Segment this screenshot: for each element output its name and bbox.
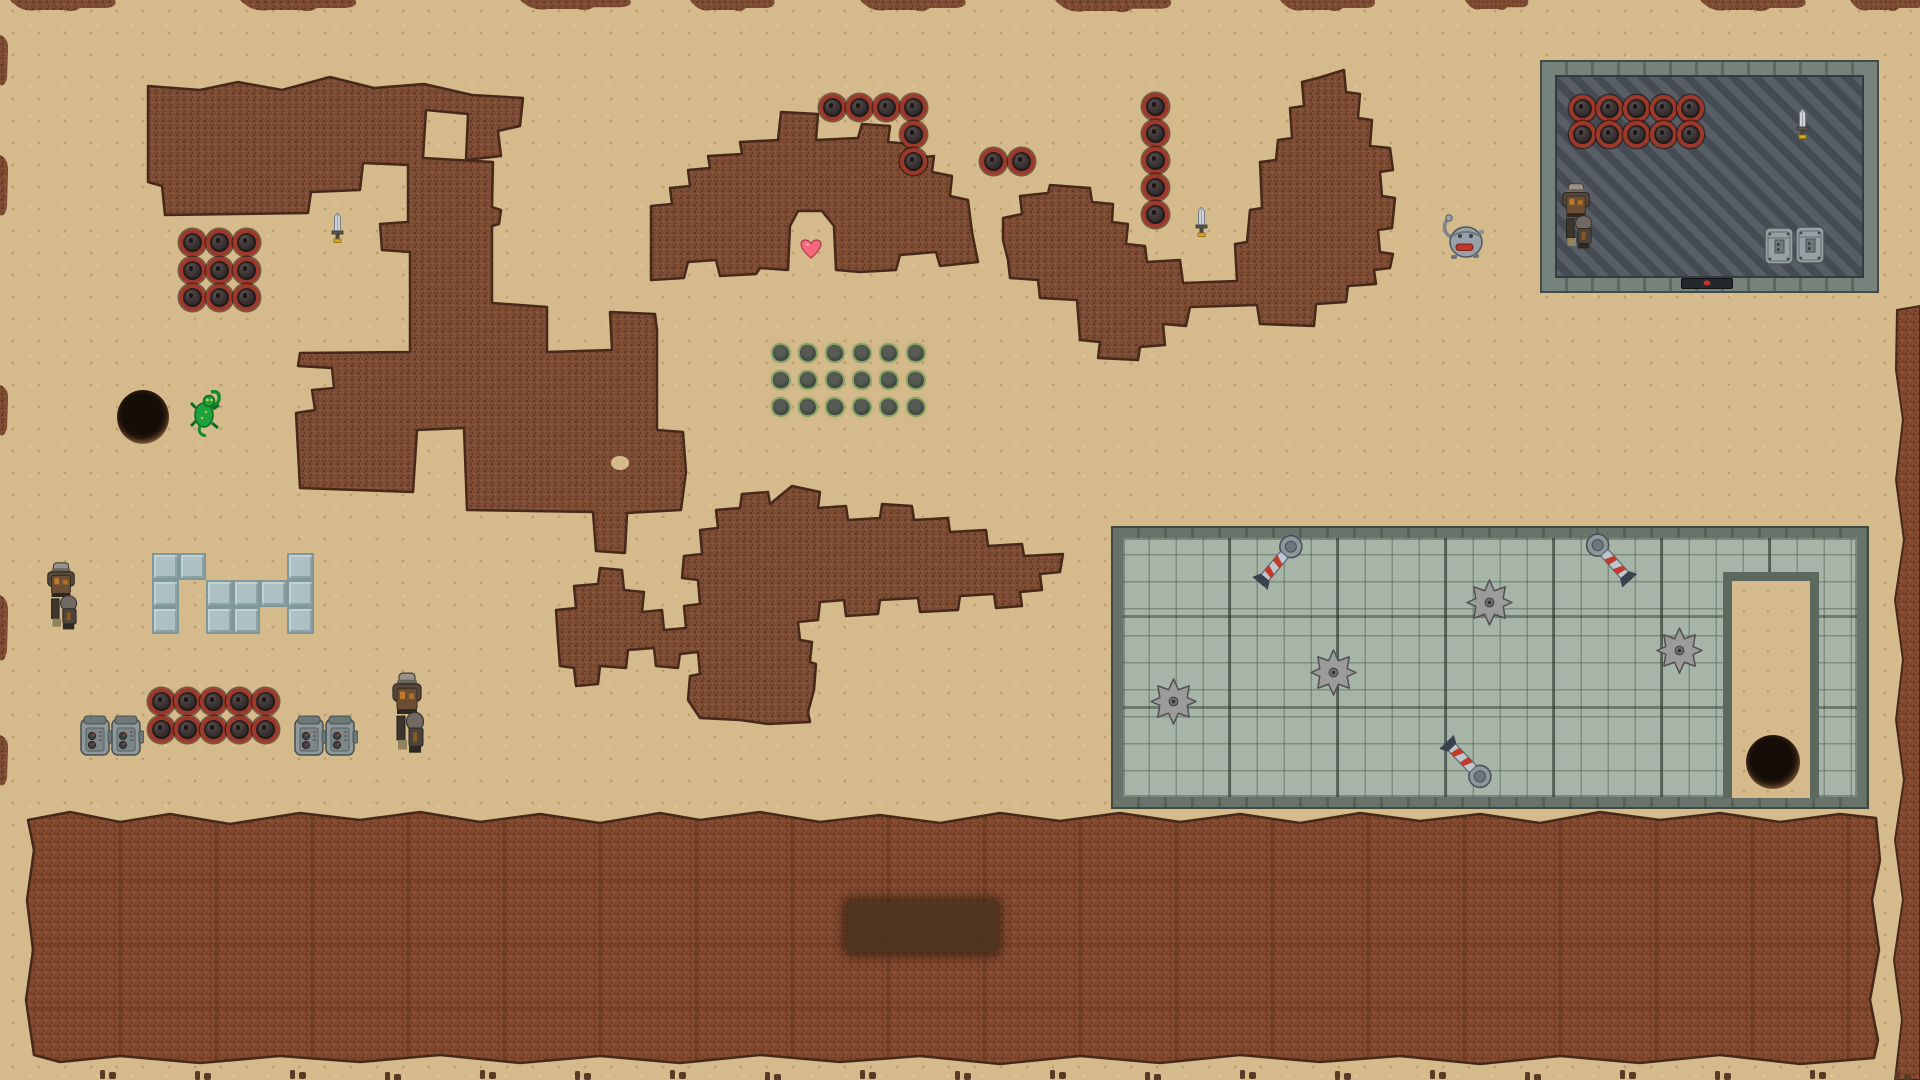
top-edge-tufts [10,0,1920,12]
mine[interactable] [206,229,233,256]
saw-blade-icon [1656,627,1703,674]
armored[interactable] [1559,182,1593,252]
mine[interactable] [900,148,927,175]
mine[interactable] [1623,121,1650,148]
mine[interactable] [1677,121,1704,148]
mine[interactable] [1596,95,1623,122]
saw[interactable] [1310,649,1357,696]
mine[interactable] [1142,93,1169,120]
sword[interactable] [1195,207,1208,237]
supply-crate-icon [1795,225,1825,265]
mine[interactable] [179,229,206,256]
blue-tile[interactable] [179,553,206,580]
left-edge-tufts [0,35,8,785]
cactus-plant[interactable] [908,372,924,388]
blue-tile[interactable] [152,607,179,634]
machine-icon [80,715,113,757]
mine[interactable] [148,688,175,715]
crate[interactable] [1764,226,1794,266]
cactus-plant[interactable] [881,345,897,361]
mine[interactable] [873,94,900,121]
mine[interactable] [200,716,227,743]
mine[interactable] [226,688,253,715]
cactus-plant[interactable] [800,399,816,415]
hole[interactable] [117,390,169,444]
cactus-plant[interactable] [800,345,816,361]
saw[interactable] [1150,678,1197,725]
mine[interactable] [980,148,1007,175]
mine[interactable] [252,688,279,715]
dirt-northwest-mass [148,77,686,553]
machine-icon [111,715,144,757]
saw[interactable] [1466,579,1513,626]
mine[interactable] [900,121,927,148]
saw-blade-icon [1150,678,1197,725]
armored-soldier-icon [389,671,425,757]
blue-tile[interactable] [287,553,314,580]
mine[interactable] [148,716,175,743]
cactus-plant[interactable] [827,399,843,415]
mine[interactable] [1142,174,1169,201]
blue-tile[interactable] [260,580,287,607]
mine[interactable] [819,94,846,121]
machine-icon [294,715,327,757]
mine[interactable] [1142,147,1169,174]
mine[interactable] [200,688,227,715]
machine[interactable] [325,715,358,757]
blue-tile[interactable] [233,607,260,634]
mine[interactable] [846,94,873,121]
mine[interactable] [1142,120,1169,147]
lizard[interactable] [190,389,222,437]
supply-crate-icon [1764,226,1794,266]
crate[interactable] [1795,225,1825,265]
cactus-plant[interactable] [800,372,816,388]
dirt-right-edge-strip [1894,306,1920,1080]
mine[interactable] [179,257,206,284]
sword[interactable] [1796,109,1809,139]
mine[interactable] [1623,95,1650,122]
sword-icon [1796,109,1809,139]
mine[interactable] [1677,95,1704,122]
blue-tile[interactable] [287,607,314,634]
cactus-plant[interactable] [773,345,789,361]
hole[interactable] [1746,735,1800,789]
cactus-plant[interactable] [854,399,870,415]
mine[interactable] [1569,121,1596,148]
mine[interactable] [206,257,233,284]
mine[interactable] [206,284,233,311]
dirt-central-south-blob [556,486,1063,724]
machine[interactable] [111,715,144,757]
saw[interactable] [1656,627,1703,674]
armored[interactable] [389,671,425,757]
cactus-plant[interactable] [827,372,843,388]
mine[interactable] [174,688,201,715]
mine[interactable] [1008,148,1035,175]
mine[interactable] [174,716,201,743]
cactus-plant[interactable] [773,372,789,388]
blue-tile[interactable] [206,607,233,634]
bottom-edge-marks [100,1070,1911,1080]
blue-tile[interactable] [152,553,179,580]
cactus-plant[interactable] [908,345,924,361]
mine[interactable] [1596,121,1623,148]
blue-tile[interactable] [233,580,260,607]
blue-tile[interactable] [287,580,314,607]
robot[interactable] [1439,212,1485,262]
cactus-plant[interactable] [881,399,897,415]
saw-blade-icon [1310,649,1357,696]
machine[interactable] [294,715,327,757]
sword[interactable] [331,213,344,243]
heart-icon [800,239,822,259]
blue-tile[interactable] [206,580,233,607]
armored-soldier-icon [1559,182,1593,252]
cactus-plant[interactable] [908,399,924,415]
armored[interactable] [44,561,78,633]
mine[interactable] [1650,121,1677,148]
cactus-plant[interactable] [827,345,843,361]
saw-blade-icon [1466,579,1513,626]
mine[interactable] [233,257,260,284]
mine[interactable] [900,94,927,121]
door[interactable] [1681,278,1733,289]
mine[interactable] [233,284,260,311]
sword-icon [331,213,344,243]
machine[interactable] [80,715,113,757]
sword-icon [1195,207,1208,237]
dark-soil-patch [847,902,997,952]
mine[interactable] [226,716,253,743]
cactus-plant[interactable] [881,372,897,388]
mine[interactable] [1569,95,1596,122]
mine[interactable] [1650,95,1677,122]
armored-soldier-icon [44,561,78,633]
mine[interactable] [233,229,260,256]
robot-scorpion-icon [1439,212,1485,262]
lizard-icon [190,389,222,437]
heart[interactable] [800,239,822,259]
mine[interactable] [179,284,206,311]
blue-tile[interactable] [152,580,179,607]
mine[interactable] [252,716,279,743]
hatched-floor-room [1542,62,1877,291]
cactus-plant[interactable] [854,345,870,361]
game-map [0,0,1920,1080]
cactus-plant[interactable] [773,399,789,415]
mine[interactable] [1142,201,1169,228]
cactus-plant[interactable] [854,372,870,388]
machine-icon [325,715,358,757]
